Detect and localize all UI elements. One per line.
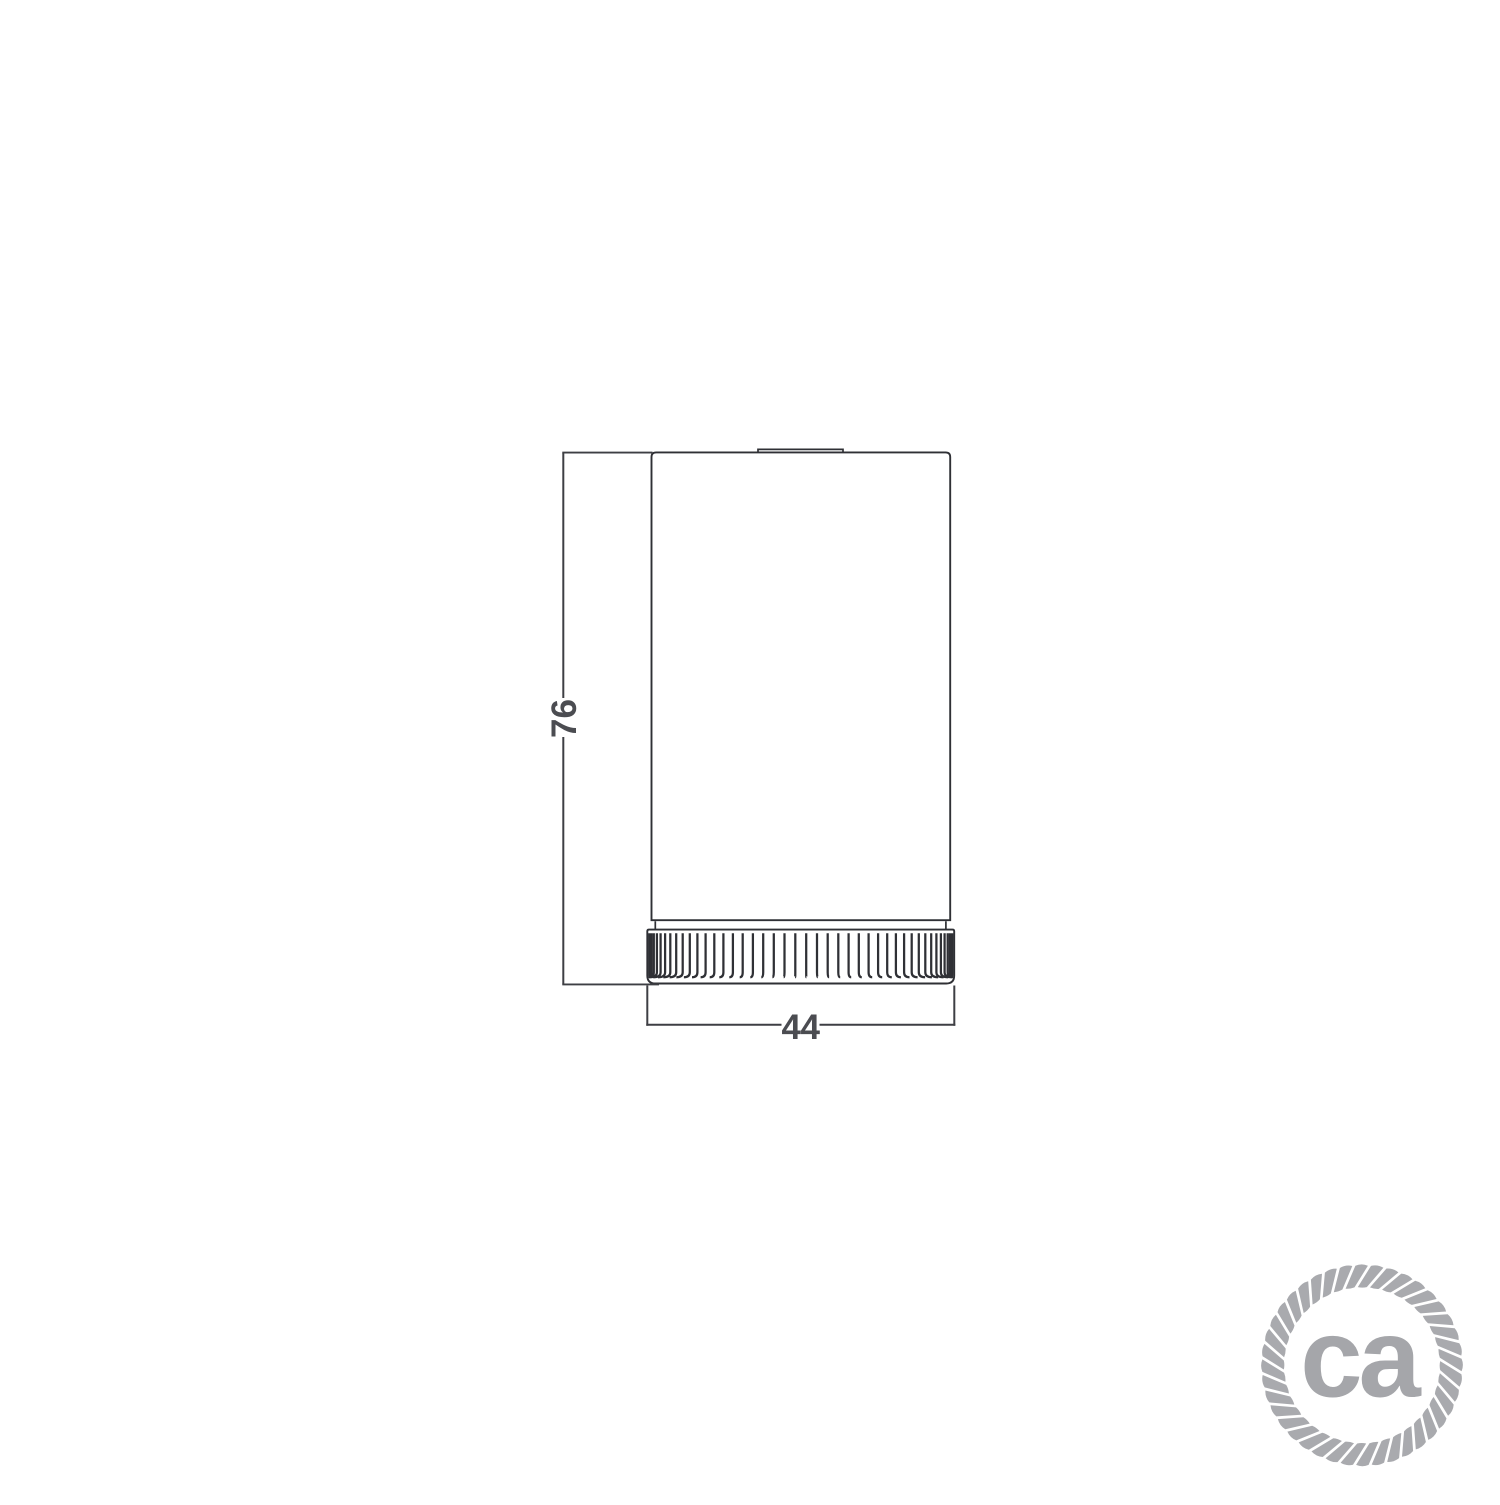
svg-text:44: 44 [782,1008,821,1047]
svg-text:76: 76 [545,699,584,738]
svg-text:ca: ca [1300,1296,1421,1421]
